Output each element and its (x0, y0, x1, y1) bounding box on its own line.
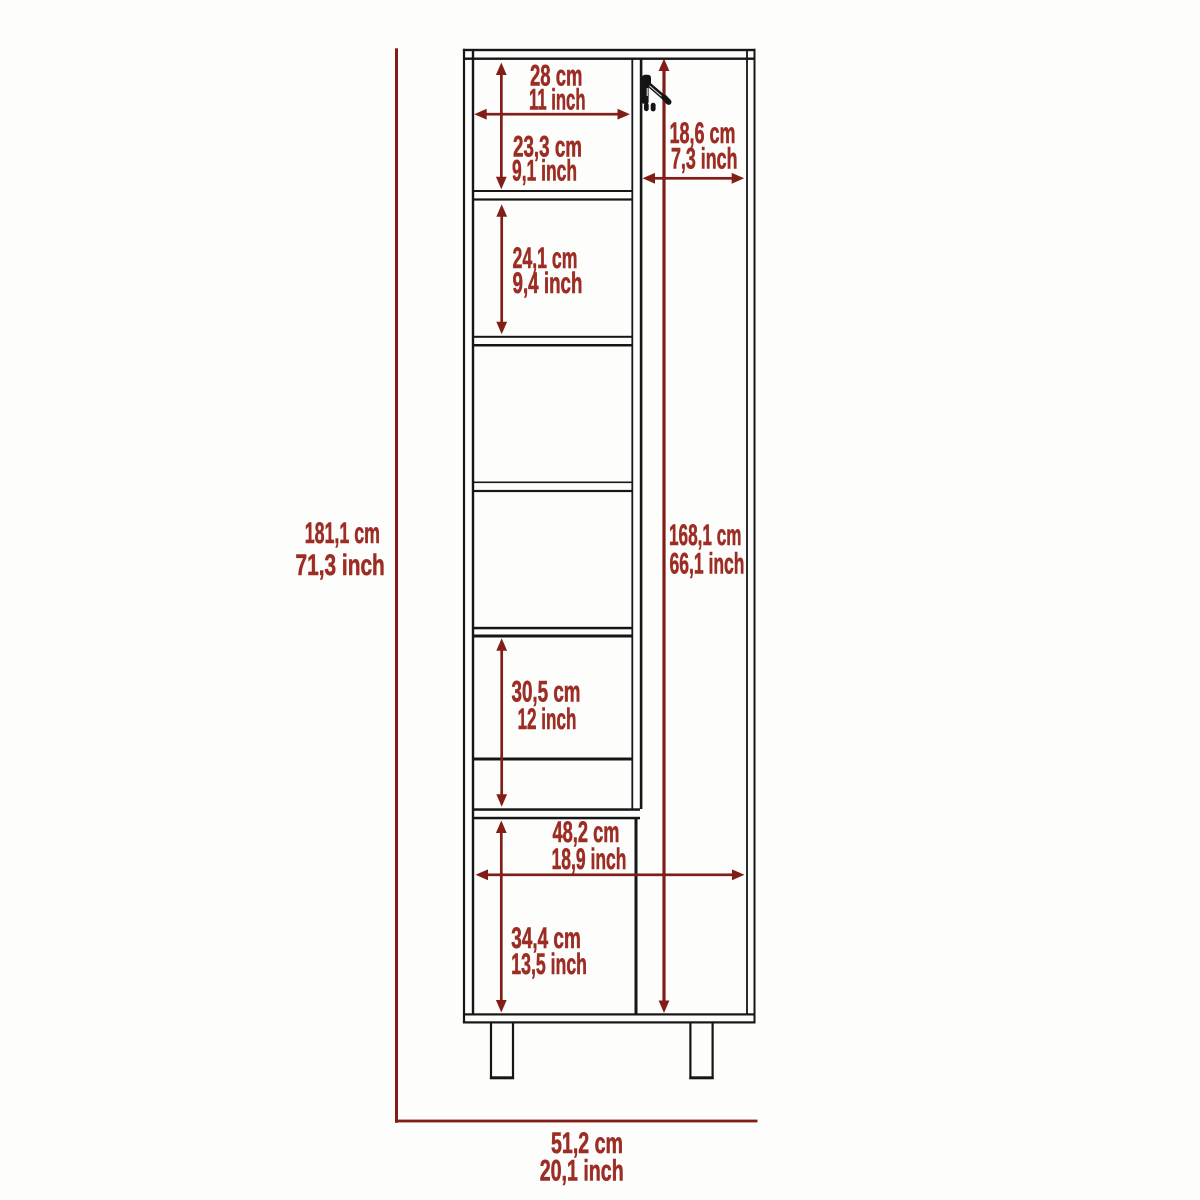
svg-text:13,5 inch: 13,5 inch (511, 948, 587, 981)
svg-text:11 inch: 11 inch (529, 83, 586, 116)
svg-text:9,4 inch: 9,4 inch (513, 267, 583, 300)
svg-text:66,1 inch: 66,1 inch (670, 548, 745, 581)
svg-text:12 inch: 12 inch (518, 703, 577, 736)
svg-text:181,1 cm: 181,1 cm (305, 517, 380, 550)
svg-text:7,3 inch: 7,3 inch (671, 143, 738, 176)
svg-text:9,1 inch: 9,1 inch (512, 155, 577, 188)
svg-text:20,1 inch: 20,1 inch (540, 1155, 624, 1188)
svg-text:71,3 inch: 71,3 inch (296, 549, 385, 582)
svg-text:18,9 inch: 18,9 inch (552, 843, 627, 876)
